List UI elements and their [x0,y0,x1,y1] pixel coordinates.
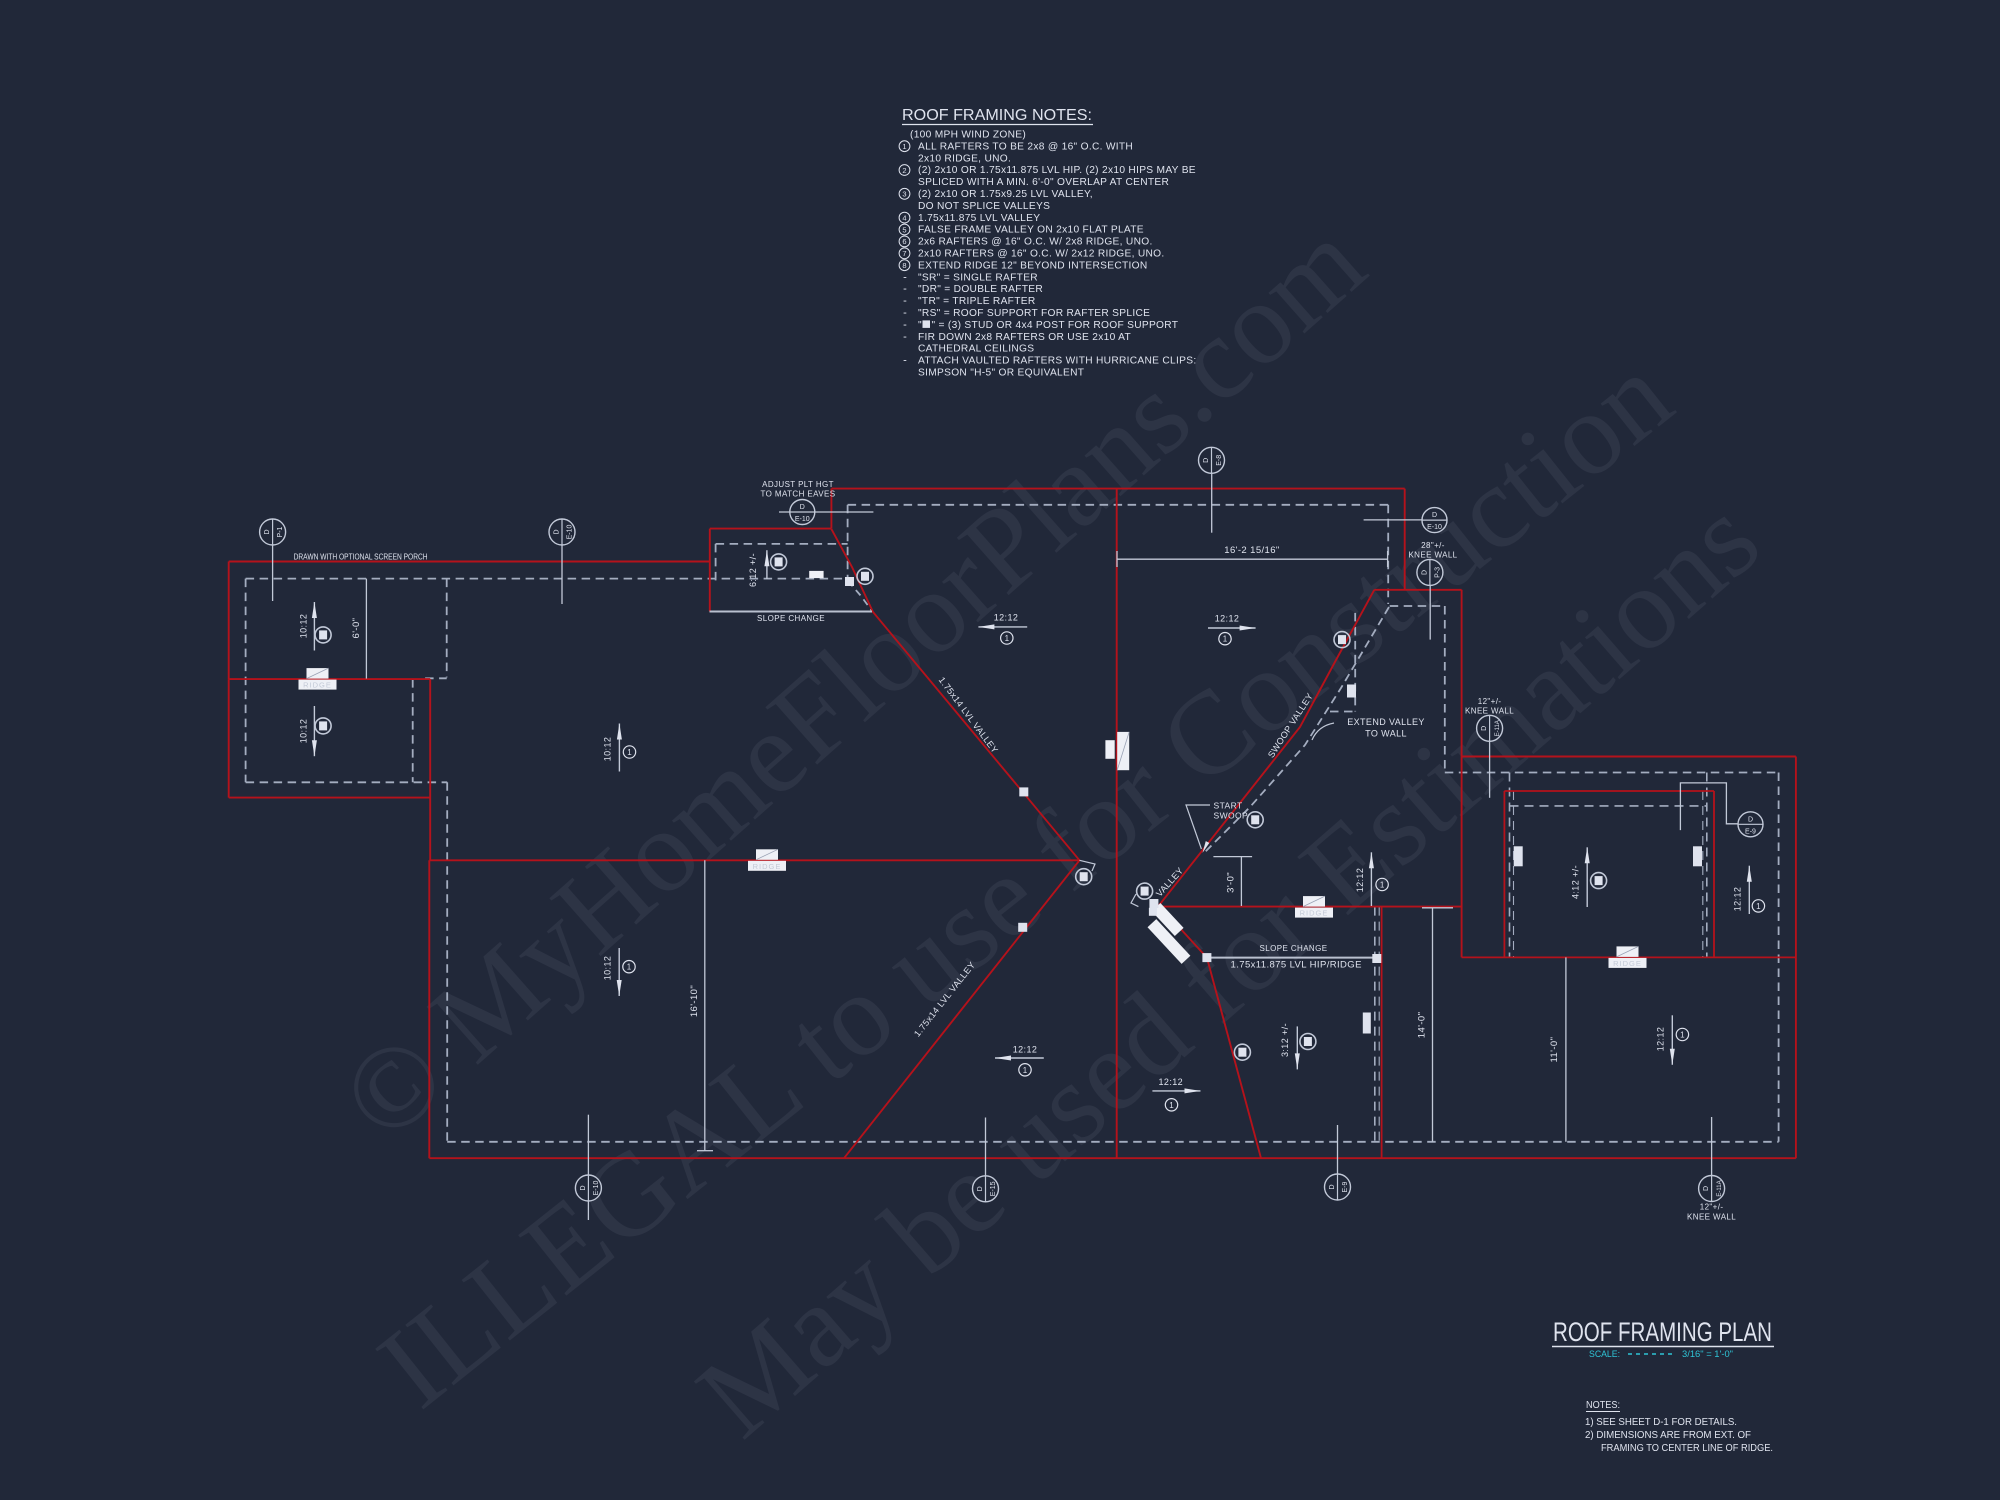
svg-text:P-1: P-1 [277,526,284,537]
svg-text:-: - [903,331,907,343]
svg-text:E-8: E-8 [1216,455,1223,466]
svg-text:CATHEDRAL CEILINGS: CATHEDRAL CEILINGS [918,344,1034,355]
svg-text:KNEE WALL: KNEE WALL [1465,707,1514,716]
svg-text:10:12: 10:12 [603,737,613,762]
svg-text:ATTACH VAULTED RAFTERS WITH HU: ATTACH VAULTED RAFTERS WITH HURRICANE CL… [918,356,1196,367]
svg-text:11'-0": 11'-0" [1549,1037,1560,1063]
svg-text:D: D [264,529,271,534]
svg-text:P-3: P-3 [1434,567,1441,578]
svg-text:E-9: E-9 [1745,828,1756,835]
svg-text:12:12: 12:12 [1013,1044,1038,1054]
svg-text:16'-10": 16'-10" [689,985,700,1017]
svg-text:D: D [800,504,805,511]
svg-text:-: - [903,355,907,367]
svg-text:E-9: E-9 [1342,1181,1349,1192]
svg-text:10:12: 10:12 [299,614,309,639]
svg-text:EXTEND VALLEY: EXTEND VALLEY [1347,717,1425,727]
svg-text:E-10: E-10 [567,525,574,540]
svg-text:12:12: 12:12 [994,613,1019,623]
svg-text:6: 6 [902,237,906,246]
svg-text:(100 MPH WIND ZONE): (100 MPH WIND ZONE) [910,130,1026,141]
svg-text:DO NOT SPLICE VALLEYS: DO NOT SPLICE VALLEYS [918,201,1050,212]
svg-text:(2) 2x10 OR 1.75x11.875 LVL HI: (2) 2x10 OR 1.75x11.875 LVL HIP. (2) 2x1… [918,165,1196,176]
svg-text:12:12: 12:12 [1159,1077,1184,1087]
svg-text:" = (3) STUD OR 4x4 POST FOR: " = (3) STUD OR 4x4 POST FOR ROOF SUPPOR… [932,320,1179,331]
svg-text:12"+/-: 12"+/- [1478,697,1502,706]
svg-text:1: 1 [1023,1066,1028,1075]
svg-text:6'-0": 6'-0" [351,618,362,639]
svg-text:1: 1 [627,963,632,972]
svg-text:12:12: 12:12 [1215,614,1240,624]
svg-text:D: D [1203,458,1210,463]
svg-text:FIR DOWN 2x8 RAFTERS OR USE 2x: FIR DOWN 2x8 RAFTERS OR USE 2x10 AT [918,332,1131,343]
svg-text:"SR" = SINGLE RAFTER: "SR" = SINGLE RAFTER [918,272,1038,283]
svg-text:1: 1 [1380,881,1385,890]
svg-text:SCALE:: SCALE: [1589,1349,1620,1359]
svg-text:"DR" = DOUBLE RAFTER: "DR" = DOUBLE RAFTER [918,284,1043,295]
svg-text:FRAMING TO CENTER LINE OF RIDG: FRAMING TO CENTER LINE OF RIDGE. [1601,1443,1773,1454]
svg-text:ROOF FRAMING NOTES:: ROOF FRAMING NOTES: [902,107,1092,124]
svg-text:1: 1 [902,142,906,151]
svg-text:SPLICED WITH A MIN. 6'-0" OVER: SPLICED WITH A MIN. 6'-0" OVERLAP AT CEN… [918,177,1169,188]
svg-text:D: D [1432,512,1437,519]
svg-text:1: 1 [1223,635,1228,644]
svg-text:5: 5 [902,225,906,234]
svg-text:12:12: 12:12 [1732,887,1742,912]
svg-text:1: 1 [1680,1031,1685,1040]
svg-text:3:12 +/-: 3:12 +/- [1280,1023,1290,1057]
svg-text:2: 2 [902,166,906,175]
svg-text:12"+/-: 12"+/- [1700,1203,1724,1212]
svg-text:FALSE FRAME VALLEY ON 2x10 FLA: FALSE FRAME VALLEY ON 2x10 FLAT PLATE [918,225,1144,236]
svg-text:-: - [903,271,907,283]
svg-text:RIDGE: RIDGE [1300,909,1329,918]
svg-text:SLOPE CHANGE: SLOPE CHANGE [1260,944,1328,953]
svg-text:D: D [1481,726,1488,731]
svg-text:4:12 +/-: 4:12 +/- [1570,865,1580,899]
svg-text:-: - [903,307,907,319]
svg-text:SIMPSON "H-5" OR EQUIVALENT: SIMPSON "H-5" OR EQUIVALENT [918,368,1084,379]
svg-text:SWOOP: SWOOP [1214,810,1249,820]
svg-text:12:12: 12:12 [1355,868,1365,893]
svg-text:1: 1 [1169,1101,1174,1110]
svg-text:ADJUST PLT HGT: ADJUST PLT HGT [762,480,834,489]
svg-text:D: D [554,529,561,534]
svg-text:TO WALL: TO WALL [1365,729,1407,739]
svg-text:6:12 +/-: 6:12 +/- [748,553,758,587]
svg-text:-: - [903,295,907,307]
svg-text:E-11A: E-11A [1717,1180,1723,1196]
svg-text:KNEE WALL: KNEE WALL [1687,1213,1736,1222]
svg-text:1: 1 [627,748,632,757]
svg-text:2x10 RAFTERS @ 16" O.C. W/ 2x1: 2x10 RAFTERS @ 16" O.C. W/ 2x12 RIDGE, U… [918,249,1165,260]
svg-text:1) SEE SHEET D-1 FOR DETAILS.: 1) SEE SHEET D-1 FOR DETAILS. [1585,1417,1737,1428]
svg-text:"RS" = ROOF SUPPORT FOR RAFTER: "RS" = ROOF SUPPORT FOR RAFTER SPLICE [918,308,1150,319]
svg-text:28"+/-: 28"+/- [1421,541,1445,550]
svg-text:E-10: E-10 [593,1181,600,1196]
svg-text:KNEE WALL: KNEE WALL [1408,551,1457,560]
svg-text:14'-0": 14'-0" [1417,1012,1428,1039]
svg-text:3: 3 [902,190,906,199]
svg-text:ALL RAFTERS TO BE 2x8 @ 16" O.: ALL RAFTERS TO BE 2x8 @ 16" O.C. WITH [918,141,1133,152]
svg-text:2x6 RAFTERS @ 16" O.C. W/ 2x8: 2x6 RAFTERS @ 16" O.C. W/ 2x8 RIDGE, UNO… [918,237,1153,248]
svg-text:D: D [1421,570,1428,575]
svg-text:RIDGE: RIDGE [753,862,782,871]
svg-text:D: D [1703,1186,1710,1191]
svg-text:E-11A: E-11A [1495,720,1501,736]
svg-text:D: D [580,1185,587,1190]
svg-text:E-15: E-15 [990,1181,997,1196]
svg-text:3/16" = 1'-0": 3/16" = 1'-0" [1682,1349,1733,1359]
svg-text:RIDGE: RIDGE [303,681,332,690]
svg-text:D: D [1329,1184,1336,1189]
svg-text:TO MATCH EAVES: TO MATCH EAVES [761,490,836,499]
svg-text:12:12: 12:12 [1656,1027,1666,1052]
svg-text:E-10: E-10 [1427,524,1442,531]
svg-text:E-10: E-10 [795,516,810,523]
svg-text:DRAWN WITH OPTIONAL SCREEN POR: DRAWN WITH OPTIONAL SCREEN PORCH [294,552,428,562]
svg-text:SLOPE CHANGE: SLOPE CHANGE [757,614,825,623]
svg-text:D: D [977,1186,984,1191]
svg-text:2x10 RIDGE, UNO.: 2x10 RIDGE, UNO. [918,153,1011,164]
svg-text:D: D [1748,816,1753,823]
svg-text:(2) 2x10 OR 1.75x9.25 LVL VALL: (2) 2x10 OR 1.75x9.25 LVL VALLEY, [918,189,1093,200]
svg-text:8: 8 [902,261,906,270]
svg-text:3'-0": 3'-0" [1225,872,1236,893]
svg-text:-: - [903,283,907,295]
svg-text:1: 1 [1005,634,1010,643]
svg-text:ROOF FRAMING PLAN: ROOF FRAMING PLAN [1553,1317,1772,1347]
svg-text:7: 7 [902,249,906,258]
svg-text:10:12: 10:12 [603,956,613,981]
svg-text:10:12: 10:12 [299,719,309,744]
svg-text:": " [918,320,922,331]
svg-text:1.75x11.875 LVL HIP/RIDGE: 1.75x11.875 LVL HIP/RIDGE [1231,960,1362,971]
svg-text:-: - [903,319,907,331]
svg-text:"TR" = TRIPLE RAFTER: "TR" = TRIPLE RAFTER [918,296,1036,307]
svg-text:NOTES:: NOTES: [1586,1400,1620,1411]
svg-text:4: 4 [902,213,906,222]
svg-text:2) DIMENSIONS ARE FROM EXT. O: 2) DIMENSIONS ARE FROM EXT. OF [1585,1430,1751,1441]
svg-text:RIDGE: RIDGE [1613,959,1642,968]
svg-text:1: 1 [1756,902,1761,911]
svg-text:1.75x11.875 LVL VALLEY: 1.75x11.875 LVL VALLEY [918,213,1040,224]
svg-text:START: START [1214,800,1243,810]
svg-text:EXTEND RIDGE 12" BEYOND INTERS: EXTEND RIDGE 12" BEYOND INTERSECTION [918,260,1148,271]
svg-text:16'-2 15/16": 16'-2 15/16" [1224,545,1279,556]
